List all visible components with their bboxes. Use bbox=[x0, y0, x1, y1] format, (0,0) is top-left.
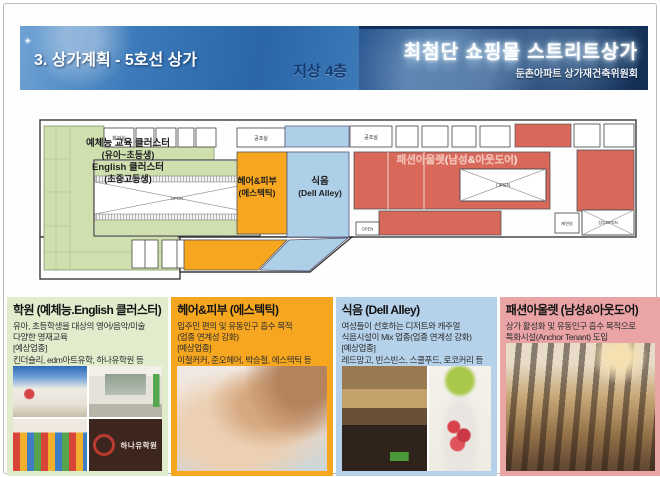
photo-academy: 하나유학원 bbox=[13, 366, 162, 471]
room-label-hvac-a: 공조실 bbox=[254, 135, 268, 142]
panel-hair: 헤어&피부 (에스텍틱) 입주민 편의 및 유동인구 흡수 목적 (업종 연계성… bbox=[171, 297, 332, 476]
room-label-upper-open: 상부OPEN bbox=[598, 219, 618, 226]
panel-food-line: 레드망고, 빈스빈스, 스쿨푸드, 로코커리 등 bbox=[342, 355, 491, 366]
category-panels: 학원 (예체능.English 클러스터) 유아, 초등학생을 대상의 영어/음… bbox=[7, 297, 660, 476]
panel-academy-title: 학원 (예체능.English 클러스터) bbox=[13, 301, 162, 318]
panel-hair-line: 입주민 편의 및 유동인구 흡수 목적 bbox=[177, 321, 326, 332]
food-label-1: 식음 bbox=[311, 175, 329, 187]
panel-academy-line: 다양한 영재교육 bbox=[13, 332, 162, 343]
floor-plan: 회의실 공조실 공조실 OPEN bbox=[32, 114, 648, 296]
floor-label: 지상 4층 bbox=[293, 60, 347, 81]
academy-label-4: (초중고등생) bbox=[104, 173, 151, 184]
photo-academy-kids bbox=[13, 419, 87, 471]
panel-fashion: 패션아울렛 (남성&아웃도어) 상가 활성화 및 유동인구 흡수 목적으로 특화… bbox=[500, 297, 660, 476]
zone-fashion-bar bbox=[379, 211, 501, 235]
photo-food-dessert bbox=[429, 366, 490, 471]
panel-academy-line: 유아, 초등학생을 대상의 영어/음악/미술 bbox=[13, 321, 162, 332]
panel-food-line: [예상업종] bbox=[342, 343, 491, 354]
panel-fashion-line: 상가 활성화 및 유동인구 흡수 목적으로 bbox=[506, 321, 655, 332]
room-label-hvac-b: 공조실 bbox=[364, 134, 378, 141]
academy-label-1: 예체능 교육 클러스터 bbox=[86, 137, 170, 149]
panel-food: 식음 (Dell Alley) 여성들이 선호하는 디저트와 캐주얼 식음시설이… bbox=[336, 297, 497, 476]
panel-food-line: 식음시설이 Mix 업종(업종 연계성 강화) bbox=[342, 332, 491, 343]
hair-label-2: (에스텍틱) bbox=[239, 188, 276, 198]
food-label-2: (Dell Alley) bbox=[298, 188, 342, 198]
logo-ring-icon bbox=[93, 434, 115, 456]
panel-food-line: 여성들이 선호하는 디저트와 캐주얼 bbox=[342, 321, 491, 332]
room-label-smoke: 제연실 bbox=[561, 220, 573, 227]
panel-academy-line: [예상업종] bbox=[13, 343, 162, 354]
zone-fashion-east bbox=[577, 150, 634, 211]
hana-academy-sign: 하나유학원 bbox=[120, 440, 157, 451]
header-left-band: ✦ 3. 상가계획 - 5호선 상가 지상 4층 bbox=[20, 26, 359, 90]
hair-label-1: 헤어&피부 bbox=[237, 175, 277, 186]
open-label-right: OPEN bbox=[496, 183, 511, 189]
academy-label-2: (유아~초등생) bbox=[102, 149, 155, 160]
header-right-band: 최첨단 쇼핑몰 스트리트상가 둔촌아파트 상가재건축위원회 bbox=[359, 26, 648, 90]
photo-fashion-store bbox=[506, 343, 655, 471]
header-band: ✦ 3. 상가계획 - 5호선 상가 지상 4층 최첨단 쇼핑몰 스트리트상가 … bbox=[20, 26, 648, 90]
panel-hair-line: (업종 연계성 강화) bbox=[177, 332, 326, 343]
open-label-center: OPEN bbox=[171, 196, 184, 201]
panel-academy-line: 킨더슐리, edm아트유학, 하나유학원 등 bbox=[13, 355, 162, 366]
zone-food-top-band bbox=[285, 126, 349, 147]
page-title: 3. 상가계획 - 5호선 상가 bbox=[34, 46, 197, 70]
panel-hair-title: 헤어&피부 (에스텍틱) bbox=[177, 301, 326, 318]
project-title: 최첨단 쇼핑몰 스트리트상가 bbox=[404, 37, 638, 64]
slide-frame: ✦ 3. 상가계획 - 5호선 상가 지상 4층 최첨단 쇼핑몰 스트리트상가 … bbox=[3, 3, 657, 474]
photo-academy-logo: 하나유학원 bbox=[89, 419, 163, 471]
academy-label-3: English 클러스터 bbox=[92, 161, 164, 173]
sparkle-icon: ✦ bbox=[24, 36, 32, 47]
panel-food-title: 식음 (Dell Alley) bbox=[342, 301, 491, 318]
photo-food-cafe bbox=[342, 366, 428, 471]
photo-academy-classroom bbox=[89, 366, 163, 418]
panel-academy: 학원 (예체능.English 클러스터) 유아, 초등학생을 대상의 영어/음… bbox=[7, 297, 168, 476]
fashion-label: 패션아울렛(남성&아웃도어) bbox=[397, 153, 518, 166]
photo-food bbox=[342, 366, 491, 471]
committee-subtitle: 둔촌아파트 상가재건축위원회 bbox=[516, 65, 638, 80]
panel-fashion-title: 패션아울렛 (남성&아웃도어) bbox=[506, 301, 655, 318]
photo-esthetic-massage bbox=[177, 366, 326, 471]
zone-fashion-top-room bbox=[515, 124, 571, 147]
floor-plan-svg: 회의실 공조실 공조실 OPEN bbox=[32, 114, 648, 296]
open-label-bar: OPEN bbox=[362, 227, 374, 232]
panel-hair-line: [예상업종] bbox=[177, 343, 326, 354]
panel-hair-line: 이철커커, 준오헤어, 박승철, 에스텍틱 등 bbox=[177, 355, 326, 366]
panel-fashion-line: 특화시설(Anchor Tenant) 도입 bbox=[506, 332, 655, 343]
photo-academy-lobby bbox=[13, 366, 87, 418]
